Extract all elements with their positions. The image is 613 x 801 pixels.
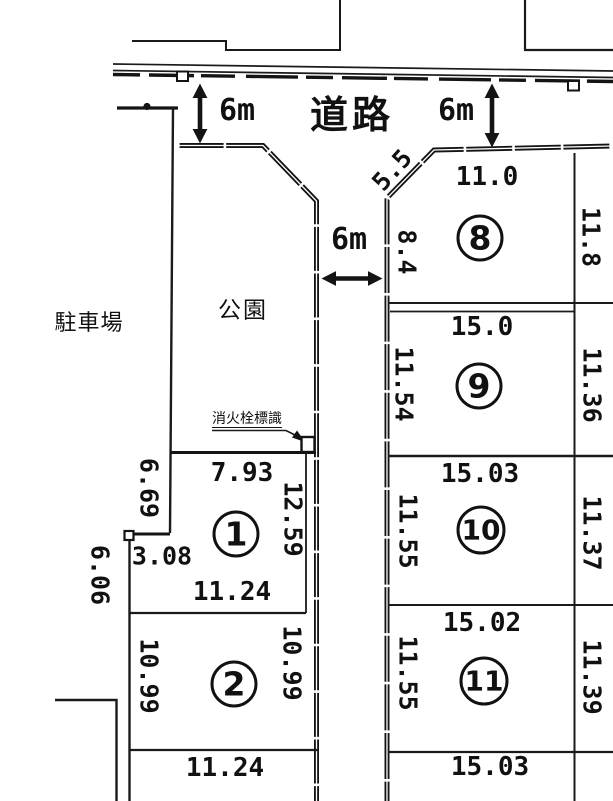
boundary-notch xyxy=(125,531,134,540)
map-linework xyxy=(0,0,613,801)
plot-number-8: 8 xyxy=(457,215,504,262)
dim-plot9-left: 11.54 xyxy=(392,346,417,421)
dim-plot8-top: 11.0 xyxy=(456,164,519,190)
road-marker-left xyxy=(177,72,188,82)
dim-plot11-right: 11.39 xyxy=(580,639,605,714)
dim-plot10-right: 11.37 xyxy=(580,495,605,570)
plot-number-11: 11 xyxy=(460,657,509,706)
road-width-arrow-right xyxy=(485,84,500,148)
road-label: 道路 xyxy=(310,96,394,134)
dim-plot1-right: 12.59 xyxy=(281,481,306,556)
dim-6m-center: 6m xyxy=(331,225,367,255)
dim-plot1-lower-left: 3.08 xyxy=(132,544,192,569)
dim-plot8-right: 11.8 xyxy=(579,207,604,267)
plot-number-9: 9 xyxy=(456,363,503,410)
hydrant-leader-line xyxy=(212,431,299,438)
dim-plot9-right: 11.36 xyxy=(580,347,605,422)
dim-plot2-bottom: 11.24 xyxy=(186,755,264,781)
plot-number-2: 2 xyxy=(211,661,258,708)
boundary-point xyxy=(143,103,150,110)
dim-plot8-left: 8.4 xyxy=(395,229,420,274)
dim-plot11-left: 11.55 xyxy=(396,635,421,710)
dim-parking-edge: 6.06 xyxy=(88,545,113,605)
dim-6m-left: 6m xyxy=(219,96,255,126)
dim-plot1-upper-left: 6.69 xyxy=(137,458,162,518)
dim-plot1-top: 7.93 xyxy=(211,460,274,486)
building-outline-right xyxy=(525,0,613,50)
road-width-arrow-center xyxy=(322,271,383,286)
dim-plot1-bottom: 11.24 xyxy=(193,579,271,605)
dim-6m-right: 6m xyxy=(438,96,474,126)
road-marker-right xyxy=(568,81,579,91)
plot-number-10: 10 xyxy=(457,506,506,555)
road-edge-upper-line xyxy=(113,64,613,71)
plot-number-1: 1 xyxy=(213,511,260,558)
building-outline-left xyxy=(132,0,340,50)
dim-plot10-left: 11.55 xyxy=(396,493,421,568)
dim-plot10-top: 15.03 xyxy=(441,461,519,487)
fire-hydrant-sign-label: 消火栓標識 xyxy=(212,412,282,428)
parking-park-boundary xyxy=(170,108,173,533)
dim-plot2-right: 10.99 xyxy=(280,625,305,700)
parking-south-corner xyxy=(55,700,117,801)
fire-hydrant-marker xyxy=(302,437,315,452)
dim-plot11-bottom: 15.03 xyxy=(451,754,529,780)
plot-map: 道路 公園 駐車場 消火栓標識 6m6m6m5.511.08.411.815.0… xyxy=(0,0,613,801)
park-label: 公園 xyxy=(218,300,268,323)
parking-label: 駐車場 xyxy=(54,313,123,335)
dim-plot11-top: 15.02 xyxy=(443,610,521,636)
dim-plot2-left: 10.99 xyxy=(137,638,162,713)
road-width-arrow-left xyxy=(193,84,208,144)
dim-plot9-top: 15.0 xyxy=(451,314,514,340)
